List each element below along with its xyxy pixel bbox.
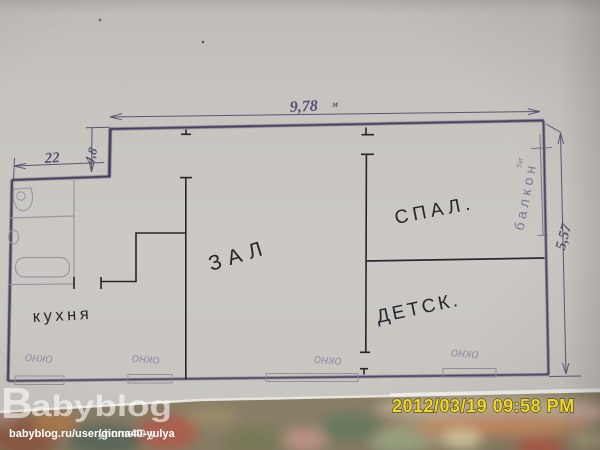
svg-text:abyblog: abyblog	[31, 390, 172, 423]
svg-text:окно: окно	[313, 353, 342, 370]
svg-text:yhome40-y: yhome40-y	[98, 428, 156, 440]
svg-text:кухня: кухня	[32, 305, 92, 326]
svg-text:22: 22	[43, 150, 61, 167]
svg-text:окно: окно	[131, 352, 160, 369]
svg-text:9,78: 9,78	[289, 98, 318, 116]
svg-text:окно: окно	[24, 351, 53, 368]
svg-text:м: м	[331, 99, 339, 109]
svg-text:окно: окно	[450, 347, 479, 364]
svg-text:B: B	[1, 379, 33, 428]
svg-text:2012/03/19 09:58 PM: 2012/03/19 09:58 PM	[392, 396, 575, 416]
